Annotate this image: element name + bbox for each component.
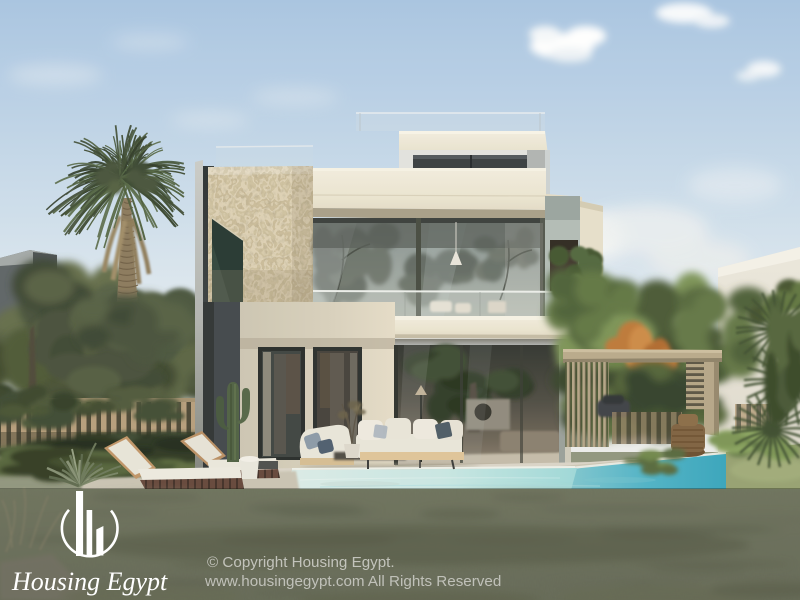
svg-text:© Copyright Housing Egypt.: © Copyright Housing Egypt. <box>207 554 395 571</box>
svg-text:www.housingegypt.com All Right: www.housingegypt.com All Rights Reserved <box>204 573 501 590</box>
svg-text:Housing Egypt: Housing Egypt <box>11 567 168 596</box>
